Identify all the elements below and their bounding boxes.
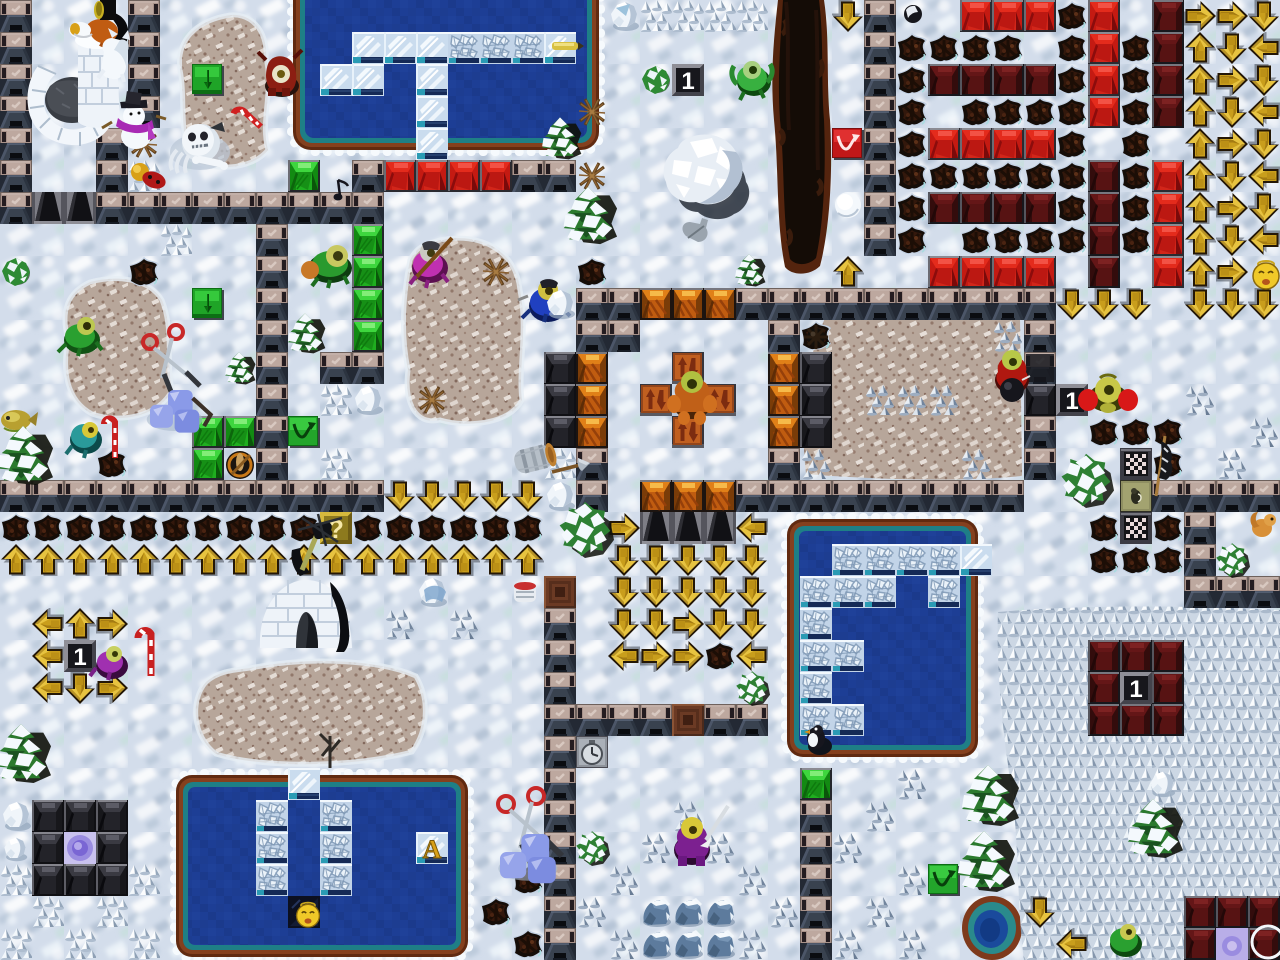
svg-text:A: A: [423, 835, 442, 864]
